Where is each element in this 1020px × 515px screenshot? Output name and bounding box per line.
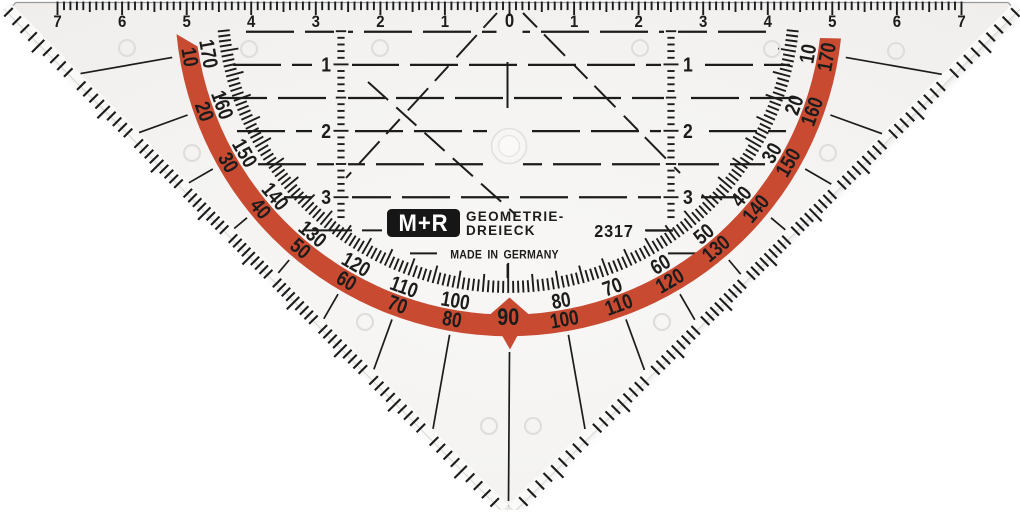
svg-text:7: 7 xyxy=(957,13,965,31)
svg-text:170: 170 xyxy=(194,38,222,70)
svg-text:4: 4 xyxy=(764,13,772,31)
svg-text:4: 4 xyxy=(247,13,255,31)
svg-text:5: 5 xyxy=(183,13,191,31)
svg-text:2: 2 xyxy=(376,13,384,31)
svg-text:5: 5 xyxy=(828,13,836,31)
svg-text:2: 2 xyxy=(683,120,693,142)
svg-text:1: 1 xyxy=(441,13,449,31)
svg-text:3: 3 xyxy=(683,186,693,208)
svg-text:3: 3 xyxy=(312,13,320,31)
svg-text:2: 2 xyxy=(634,13,642,31)
svg-text:80: 80 xyxy=(550,289,573,315)
svg-text:DREIECK: DREIECK xyxy=(466,223,536,238)
svg-text:M+R: M+R xyxy=(399,209,449,236)
svg-text:6: 6 xyxy=(893,13,901,31)
svg-text:7: 7 xyxy=(53,13,61,31)
svg-text:2317: 2317 xyxy=(594,221,634,241)
svg-text:3: 3 xyxy=(321,186,331,208)
svg-text:3: 3 xyxy=(699,13,707,31)
svg-text:GEOMETRIE-: GEOMETRIE- xyxy=(466,209,565,224)
svg-text:1: 1 xyxy=(321,53,331,75)
svg-text:6: 6 xyxy=(118,13,126,31)
svg-text:1: 1 xyxy=(570,13,578,31)
svg-text:100: 100 xyxy=(439,288,471,316)
svg-text:2: 2 xyxy=(321,120,331,142)
svg-text:90: 90 xyxy=(497,303,519,330)
svg-text:0: 0 xyxy=(505,10,514,31)
svg-text:10: 10 xyxy=(796,43,822,66)
svg-text:1: 1 xyxy=(683,53,693,75)
svg-text:MADE IN GERMANY: MADE IN GERMANY xyxy=(450,249,559,262)
